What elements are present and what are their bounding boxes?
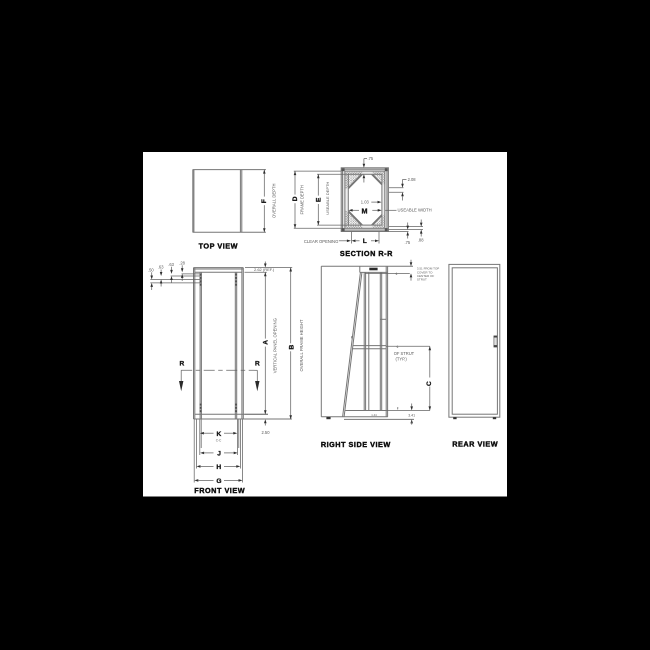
svg-text:FRAME DEPTH: FRAME DEPTH bbox=[300, 185, 305, 214]
svg-text:USEABLE DEPTH: USEABLE DEPTH bbox=[325, 182, 330, 215]
svg-text:.88: .88 bbox=[418, 237, 424, 242]
svg-text:¢: ¢ bbox=[397, 407, 399, 411]
svg-text:E: E bbox=[315, 197, 322, 202]
svg-text:R: R bbox=[180, 361, 185, 368]
svg-text:F: F bbox=[261, 199, 268, 203]
svg-text:USEABLE WIDTH: USEABLE WIDTH bbox=[398, 208, 432, 213]
svg-text:C-C: C-C bbox=[216, 438, 222, 442]
svg-text:.63: .63 bbox=[168, 262, 174, 267]
svg-text:REAR VIEW: REAR VIEW bbox=[452, 440, 498, 449]
svg-text:OVERALL DEPTH: OVERALL DEPTH bbox=[272, 183, 277, 218]
svg-text:OVERALL FRAME HEIGHT: OVERALL FRAME HEIGHT bbox=[299, 319, 304, 371]
svg-text:VERTICAL PANEL OPENING: VERTICAL PANEL OPENING bbox=[272, 318, 277, 373]
svg-text:CLEAR OPENING: CLEAR OPENING bbox=[304, 239, 338, 244]
svg-text:2.08: 2.08 bbox=[408, 177, 417, 182]
svg-text:SECTION R-R: SECTION R-R bbox=[340, 249, 393, 258]
svg-text:¢: ¢ bbox=[397, 345, 399, 349]
svg-text:J: J bbox=[217, 451, 221, 458]
svg-text:B: B bbox=[288, 345, 295, 350]
svg-text:H: H bbox=[216, 464, 221, 471]
svg-text:3.41: 3.41 bbox=[408, 413, 415, 417]
svg-text:(TYP.): (TYP.) bbox=[396, 357, 408, 362]
svg-text:A: A bbox=[262, 340, 269, 345]
svg-text:.75: .75 bbox=[368, 156, 374, 161]
svg-text:¢: ¢ bbox=[351, 336, 353, 340]
svg-text:.75: .75 bbox=[405, 240, 411, 245]
svg-text:¢: ¢ bbox=[396, 272, 398, 276]
svg-text:R: R bbox=[255, 361, 260, 368]
svg-text:STRUT: STRUT bbox=[417, 278, 427, 282]
svg-text:.28: .28 bbox=[179, 260, 185, 265]
svg-text:.50: .50 bbox=[148, 267, 154, 272]
svg-text:1.44: 1.44 bbox=[371, 413, 377, 417]
svg-text:FRONT VIEW: FRONT VIEW bbox=[194, 486, 245, 495]
svg-text:G: G bbox=[216, 478, 221, 485]
svg-text:TOP VIEW: TOP VIEW bbox=[199, 241, 238, 250]
svg-text:K: K bbox=[217, 431, 222, 438]
svg-text:D: D bbox=[292, 196, 299, 201]
svg-text:RIGHT SIDE VIEW: RIGHT SIDE VIEW bbox=[321, 440, 391, 449]
svg-text:OF STRUT: OF STRUT bbox=[394, 351, 415, 356]
svg-text:.63: .63 bbox=[158, 265, 164, 270]
svg-text:2.50: 2.50 bbox=[262, 430, 271, 435]
svg-text:1.03: 1.03 bbox=[361, 200, 370, 205]
svg-text:M: M bbox=[362, 206, 368, 215]
svg-text:C: C bbox=[426, 381, 433, 386]
svg-text:L: L bbox=[363, 238, 367, 245]
